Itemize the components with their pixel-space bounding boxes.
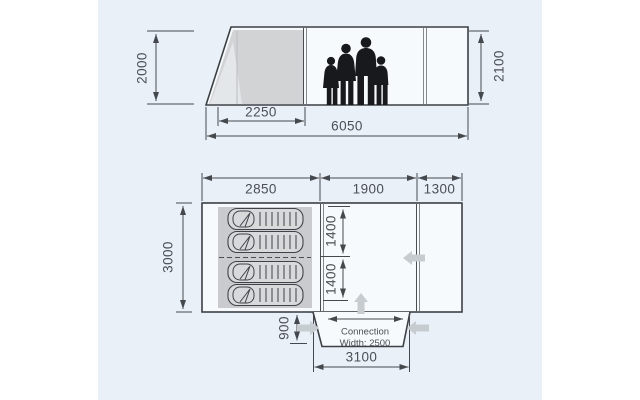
sleeping-mat-icon	[228, 262, 303, 283]
tent-dimension-diagram: 2000 2100 2250	[0, 0, 640, 400]
dim-label-depth: 3000	[161, 241, 176, 273]
dim-cabin-width: 2250	[218, 105, 305, 126]
dim-height-right: 2100	[469, 31, 507, 104]
dim-label-sleeping-width: 2850	[245, 182, 277, 197]
dim-label-inner-lower: 1400	[324, 263, 339, 295]
connection-label-line1: Connection	[341, 327, 389, 338]
sleeping-mat-icon	[228, 209, 303, 230]
dim-label-inner-upper: 1400	[324, 215, 339, 247]
dim-label-cabin-width: 2250	[245, 105, 277, 120]
side-view: 2000 2100 2250	[135, 27, 507, 140]
dim-label-tunnel-width: 3100	[346, 350, 378, 365]
dim-label-height-right: 2100	[492, 50, 507, 82]
dim-top-widths: 2850 1900 1300	[202, 173, 462, 201]
dim-label-front-width: 1300	[424, 182, 456, 197]
sleeping-mat-icon	[228, 285, 303, 306]
dim-label-living-width: 1900	[353, 182, 385, 197]
dim-depth: 3000	[161, 203, 192, 312]
floor-plan: 2850 1900 1300 3000	[161, 173, 462, 372]
dim-label-tunnel-depth: 900	[277, 316, 292, 340]
diagram-panel: 2000 2100 2250	[98, 0, 542, 400]
dim-height-left: 2000	[135, 31, 194, 104]
dim-label-height-left: 2000	[135, 52, 150, 84]
entrance-arrow-left-tunnel-icon	[407, 321, 429, 335]
diagram-svg: 2000 2100 2250	[98, 0, 542, 400]
sleeping-mat-icon	[228, 232, 303, 253]
dim-label-total-length: 6050	[331, 119, 363, 134]
connection-label-line2: Width: 2500	[340, 338, 391, 349]
